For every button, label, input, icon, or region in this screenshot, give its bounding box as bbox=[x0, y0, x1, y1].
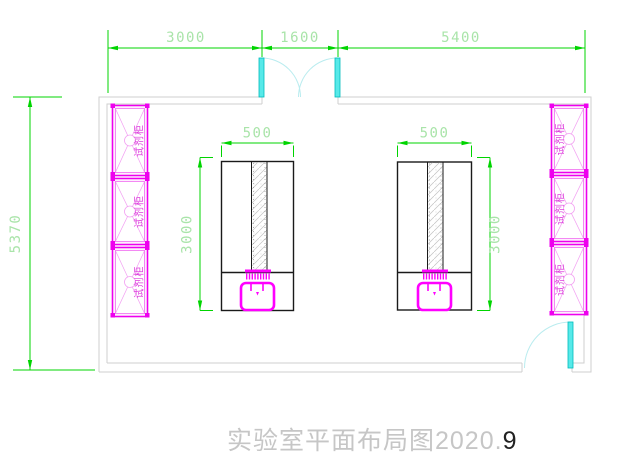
reagent-cabinet-right-3: 试剂柜 bbox=[550, 243, 589, 316]
bench-left-width-dimension: 500 bbox=[222, 126, 294, 158]
dim-bench-left-width: 500 bbox=[243, 126, 273, 142]
dim-top-middle: 1600 bbox=[280, 30, 320, 46]
bench-right-depth-dimension: 3000 bbox=[477, 158, 504, 311]
cabinet-label: 试剂柜 bbox=[554, 123, 567, 156]
floor-plan-canvas[interactable]: 3000 1600 5400 5370 bbox=[0, 0, 619, 469]
drawing-title-suffix: 9 bbox=[503, 427, 518, 455]
cabinet-label: 试剂柜 bbox=[554, 192, 567, 225]
bench-left-depth-dimension: 3000 bbox=[180, 158, 214, 311]
reagent-cabinet-left-2: 试剂柜 bbox=[111, 177, 150, 246]
dim-overall-height: 5370 bbox=[8, 214, 24, 254]
dim-bench-right-width: 500 bbox=[420, 126, 450, 142]
double-door-top bbox=[259, 58, 340, 97]
drawing-title-text: 实验室平面布局图2020. bbox=[227, 427, 503, 455]
top-dimension: 3000 1600 5400 bbox=[108, 30, 585, 93]
door-leaf bbox=[568, 322, 573, 368]
drawing-title: 实验室平面布局图2020.9 bbox=[227, 421, 517, 457]
dim-bench-right-depth: 3000 bbox=[488, 214, 504, 254]
door-leaf-right bbox=[335, 58, 340, 97]
dim-top-left: 3000 bbox=[166, 30, 206, 46]
reagent-cabinet-right-2: 试剂柜 bbox=[550, 174, 589, 243]
room-walls bbox=[99, 97, 591, 372]
cabinet-label: 试剂柜 bbox=[133, 266, 146, 299]
cabinet-label: 试剂柜 bbox=[133, 195, 146, 228]
dim-bench-left-depth: 3000 bbox=[180, 214, 196, 254]
dim-top-right: 5400 bbox=[441, 30, 481, 46]
floor-plan-drawing: 3000 1600 5400 5370 bbox=[0, 0, 619, 469]
reagent-cabinet-left-3: 试剂柜 bbox=[111, 246, 150, 318]
cabinet-label: 试剂柜 bbox=[554, 263, 567, 296]
reagent-cabinet-left-1: 试剂柜 bbox=[111, 104, 150, 177]
left-dimension: 5370 bbox=[8, 97, 95, 370]
lab-bench-right: 500 3000 bbox=[398, 126, 504, 311]
cabinet-label: 试剂柜 bbox=[133, 124, 146, 157]
door-leaf-left bbox=[259, 58, 264, 97]
single-door-bottom-right bbox=[525, 322, 574, 368]
reagent-cabinet-right-1: 试剂柜 bbox=[550, 104, 589, 174]
lab-bench-left: 500 3000 bbox=[180, 126, 294, 311]
bench-right-width-dimension: 500 bbox=[398, 126, 472, 158]
